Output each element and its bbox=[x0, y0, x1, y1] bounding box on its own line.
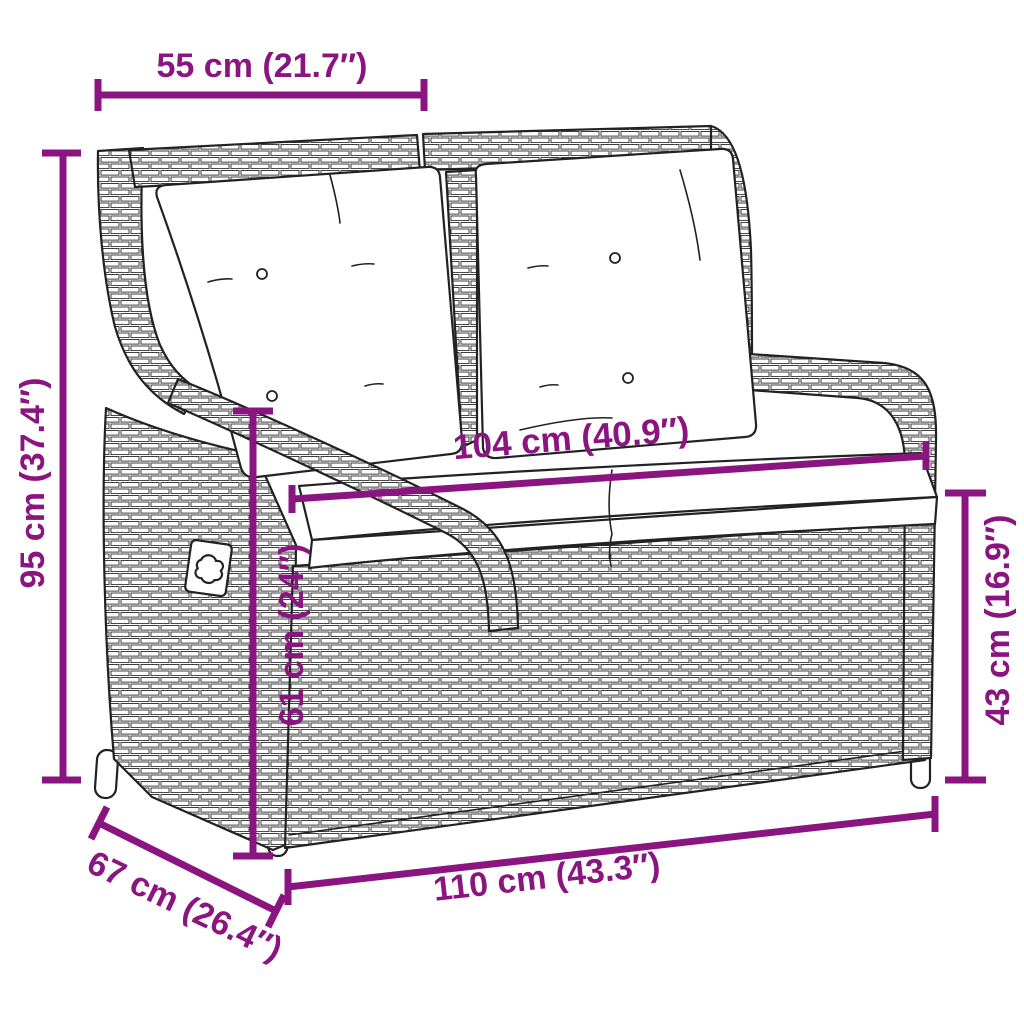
dimension-label-top-width: 55 cm (21.7″) bbox=[157, 47, 368, 85]
dimension-label-seat-height: 61 cm (24″) bbox=[273, 544, 311, 727]
dimension-label-overall-height: 95 cm (37.4″) bbox=[14, 378, 52, 589]
back-cushion-right bbox=[476, 149, 756, 458]
tuft-button bbox=[257, 269, 267, 279]
product-dimension-diagram: 55 cm (21.7″) 95 cm (37.4″) 104 cm (40.9… bbox=[0, 0, 1024, 1024]
dimension-label-right-height: 43 cm (16.9″) bbox=[979, 515, 1017, 726]
tuft-button bbox=[267, 391, 277, 401]
recline-knob bbox=[185, 539, 233, 596]
tuft-button bbox=[623, 373, 633, 383]
tuft-button bbox=[610, 253, 620, 263]
